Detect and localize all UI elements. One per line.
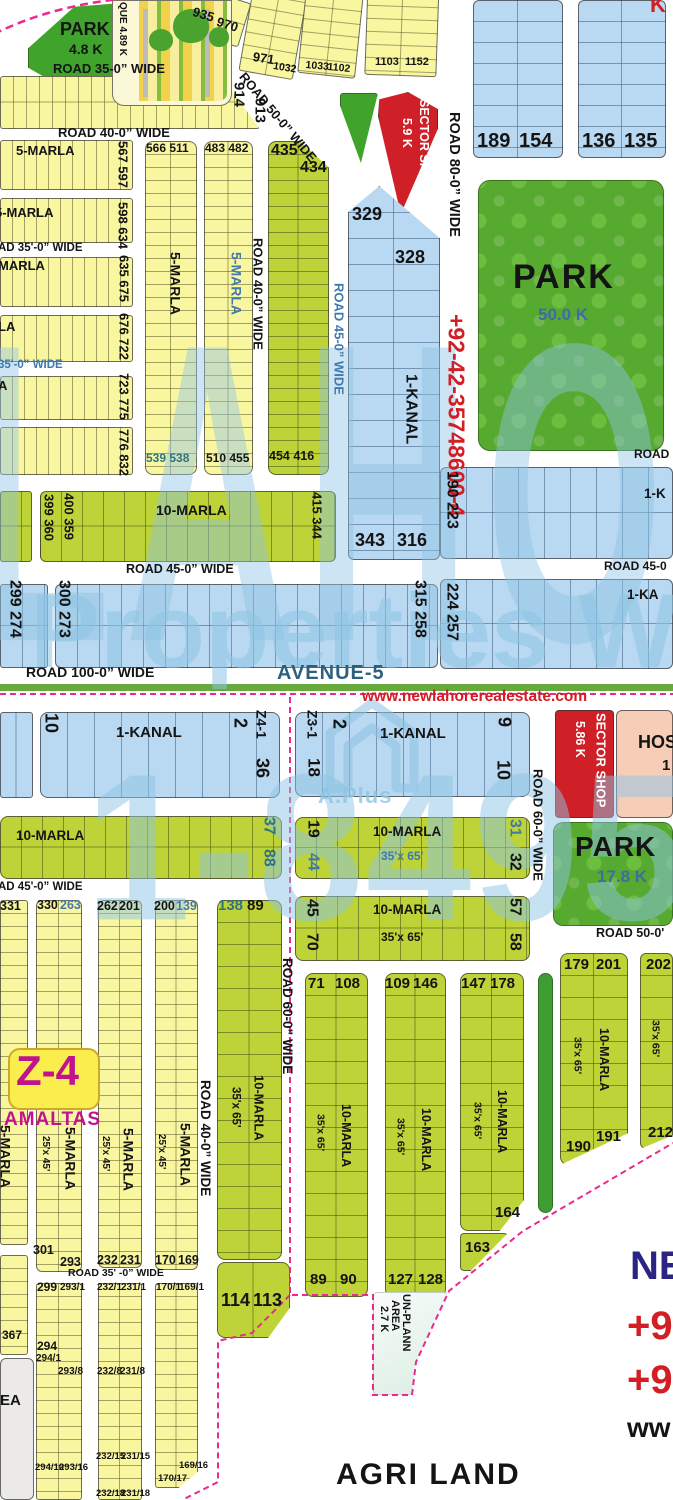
park17-size: 17.8 K [597, 868, 647, 885]
plot-299: 299 [37, 1281, 57, 1293]
row-10marla-left [0, 491, 32, 562]
plots-676-722: 676 722 [117, 313, 130, 360]
strip-c2 [98, 1283, 142, 1500]
z4-plot-2: 2 [231, 718, 249, 728]
bl-col3-5marla: 5-MARLA [121, 1128, 135, 1191]
plot-136: 136 [582, 131, 615, 151]
plot-971: 971 [252, 50, 276, 66]
plot-231-1: 231/1 [121, 1283, 146, 1293]
z3r2-58: 58 [506, 933, 522, 951]
colB-5marla: 5-MARLA [229, 252, 243, 315]
website-banner: www.newlahorerealestate.com [362, 689, 587, 705]
colA-5marla: 5-MARLA [168, 252, 182, 315]
plot-179: 179 [564, 957, 589, 972]
sector-shop1-line2: 5.9 K [400, 118, 413, 148]
plot-231: 231 [120, 1254, 141, 1267]
plot-178: 178 [490, 976, 515, 991]
plot-113: 113 [253, 1291, 282, 1309]
plot-90: 90 [340, 1272, 357, 1287]
road-60-0-wide-z3: ROAD 60-0” WIDE [531, 769, 544, 881]
5marla-row5-label: A [0, 379, 7, 392]
plots-399-360: 399 360 [42, 494, 55, 541]
row-kanal-190-223 [440, 467, 673, 559]
plot-170-17: 170/17 [158, 1474, 187, 1484]
kanal-label-329col: 1-KANAL [402, 374, 418, 444]
plots-299-274: 299 274 [6, 580, 22, 638]
plot-138: 138 [218, 898, 243, 913]
park50-name: PARK [513, 260, 615, 295]
z3r1-32: 32 [506, 853, 522, 871]
agri-land-label: AGRI LAND [336, 1460, 521, 1491]
row-5marla-4 [0, 315, 133, 362]
plot-328: 328 [395, 248, 425, 266]
colG-size: 35'x 65' [395, 1118, 406, 1155]
z3-plot-10: 10 [494, 760, 512, 780]
bl-col2-5marla: 5-MARLA [63, 1127, 77, 1190]
mosque-label: QUE 4.89 K [117, 2, 127, 56]
plot-1152: 1152 [405, 57, 429, 68]
5marla-row3-label: MARLA [0, 259, 45, 272]
plot-170: 170 [155, 1254, 176, 1267]
park50-size: 50.0 K [538, 306, 588, 323]
strip-d1 [155, 900, 198, 1270]
green-triangle-sector [340, 93, 378, 163]
plot-435: 435 [271, 143, 298, 159]
plot-331: 331 [0, 900, 21, 913]
strip-e1 [217, 900, 282, 1260]
road-80-0-wide: ROAD 80-0” WIDE [446, 112, 461, 237]
z3-kanal-label: 1-KANAL [380, 726, 446, 741]
plots-567-597: 567 597 [116, 141, 129, 188]
plot-map: PARK4.8 KQUE 4.89 K935970971103210331102… [0, 0, 673, 1500]
plot-232-1: 232/1 [97, 1283, 122, 1293]
plot-1103: 1103 [375, 57, 399, 68]
plot-263: 263 [60, 899, 81, 912]
plots-400-359: 400 359 [62, 493, 75, 540]
plot-232-8: 232/8 [97, 1367, 122, 1377]
mosque-dome-icon [149, 29, 173, 51]
road-35-0-wide-top: ROAD 35-0” WIDE [53, 62, 165, 75]
plot-189: 189 [477, 131, 510, 151]
plots-454-416: 454 416 [269, 450, 314, 463]
park1-name: PARK [60, 20, 110, 38]
z3r1-44: 44 [304, 853, 320, 871]
plots-598-634: 598 634 [116, 202, 129, 249]
colI-size: 35'x 65' [572, 1037, 583, 1074]
plots-483-482: 483 482 [205, 142, 248, 154]
row-kanal-290s [55, 584, 438, 668]
unplanned-line1: UN-PLANN [400, 1294, 411, 1351]
z3r1-size: 35'x 65' [381, 850, 423, 862]
z3r2-45: 45 [303, 899, 319, 917]
strip-c1 [98, 900, 142, 1268]
plot-1033: 1033 [305, 60, 329, 73]
plot-164: 164 [495, 1205, 520, 1220]
z3r2-size: 35'x 65' [381, 931, 423, 943]
watermark-k: K [650, 0, 666, 16]
z4-10marla-row [0, 816, 282, 879]
plot-89: 89 [247, 898, 264, 913]
plot-367: 367 [2, 1329, 22, 1341]
road-40-0-wide-bottom: ROAD 40-0” WIDE [198, 1080, 212, 1196]
plot-108: 108 [335, 976, 360, 991]
col-435-416 [268, 141, 329, 475]
plot-294: 294 [37, 1340, 57, 1352]
bl-col3-size: 25'x 45' [156, 1134, 166, 1169]
5marla-row1-label: 5-MARLA [16, 144, 75, 157]
plots-224-257: 224 257 [443, 583, 459, 641]
road-45-right: ROAD 45-0 [604, 560, 667, 572]
plot-343: 343 [355, 531, 385, 549]
5marla-row2-label: 5-MARLA [0, 206, 54, 219]
plot-169-1: 169/1 [179, 1283, 204, 1293]
z4-10marla-label: 10-MARLA [16, 829, 84, 843]
road-40-0-wide-vert: ROAD 40-0” WIDE [251, 238, 264, 350]
plot-109: 109 [385, 976, 410, 991]
ad-name: NE [630, 1246, 673, 1287]
ad-website: ww [627, 1414, 671, 1443]
z4-plot-10: 10 [42, 713, 60, 733]
bl-col1-5marla: 5-MARLA [0, 1125, 12, 1188]
plot-146: 146 [413, 976, 438, 991]
plots-539-538: 539 538 [146, 452, 189, 464]
plot-128: 128 [418, 1272, 443, 1287]
green-belt [538, 973, 553, 1213]
hospital-number: 1 [662, 758, 670, 773]
plots-566-511: 566 511 [146, 142, 189, 154]
z3r1-10marla: 10-MARLA [373, 825, 441, 839]
colF-10marla: 10-MARLA [339, 1104, 352, 1167]
plots-723-775: 723 775 [117, 373, 130, 420]
unplanned-line2: AREA [389, 1300, 400, 1331]
z3-block-label: Z3-1 [305, 710, 319, 739]
plot-212: 212 [648, 1125, 673, 1140]
colH-size: 35'x 65' [472, 1102, 483, 1139]
road-60-0-wide-bottom: ROAD 60-0” WIDE [280, 958, 294, 1074]
sector-shop1-line1: SECTOR SHOP [417, 99, 430, 190]
bl-col4-5marla: 5-MARLA [178, 1123, 192, 1186]
avenue-5: AVENUE-5 [277, 663, 385, 683]
colG-10marla: 10-MARLA [419, 1108, 432, 1171]
kanal-right-2: 1-KA [627, 588, 659, 602]
plot-169: 169 [178, 1254, 199, 1267]
bl-col2-size: 25'x 45' [100, 1136, 110, 1171]
hospital-label: HOS [638, 733, 673, 751]
colI-10marla: 10-MARLA [597, 1028, 610, 1091]
plot-1102: 1102 [327, 62, 351, 75]
plot-293-8: 293/8 [58, 1367, 83, 1377]
road-35-left-2: AD 35'-0” WIDE [0, 243, 83, 255]
z4-plot-37: 37 [260, 817, 276, 835]
row-5marla-6 [0, 427, 133, 475]
plot-201-right: 201 [596, 957, 621, 972]
plot-163: 163 [465, 1240, 490, 1255]
bl-olive-size: 35'x 65' [229, 1087, 241, 1128]
colH-10marla: 10-MARLA [495, 1090, 508, 1153]
plot-293-16: 293/16 [59, 1463, 88, 1473]
road-45-0-wide-mid: ROAD 45-0” WIDE [126, 563, 234, 576]
z3r1-19: 19 [304, 820, 320, 838]
plots-190-223: 190 223 [443, 471, 459, 529]
plot-294-1: 294/1 [36, 1354, 61, 1364]
road-40-0-wide-top: ROAD 40-0” WIDE [58, 126, 170, 139]
plot-201: 201 [119, 900, 140, 913]
plot-330: 330 [37, 899, 58, 912]
z4-kanal-partial [0, 712, 33, 798]
plot-71: 71 [308, 976, 325, 991]
plot-293-1: 293/1 [60, 1283, 85, 1293]
plot-231-8: 231/8 [120, 1367, 145, 1377]
plot-316: 316 [397, 531, 427, 549]
bl-olive-10marla: 10-MARLA [252, 1075, 265, 1141]
park1-size: 4.8 K [69, 42, 102, 56]
plot-169-16: 169/16 [179, 1461, 208, 1471]
colJ-size: 35'x 65' [650, 1020, 661, 1057]
plot-127: 127 [388, 1272, 413, 1287]
road-35-0-wide-bottom: ROAD 35' -0” WIDE [68, 1268, 164, 1279]
colF-size: 35'x 65' [315, 1114, 326, 1151]
plots-635-675: 635 675 [117, 255, 130, 302]
5marla-row4-label: LA [0, 320, 15, 333]
z3r2-57: 57 [506, 898, 522, 916]
area-block [0, 1358, 34, 1500]
plots-776-832: 776 832 [117, 429, 130, 476]
plot-231-15: 231/15 [121, 1452, 150, 1462]
z3r2-70: 70 [303, 933, 319, 951]
plot-232: 232 [97, 1254, 118, 1267]
plot-154: 154 [519, 131, 552, 151]
plot-170-1: 170/1 [156, 1283, 181, 1293]
plot-202: 202 [646, 957, 671, 972]
unplanned-line3: 2.7 K [378, 1306, 389, 1332]
sector-shop2-line2: 5.86 K [573, 721, 586, 758]
road-45-0-wide-vert: ROAD 45-0” WIDE [332, 283, 345, 395]
plot-329: 329 [352, 205, 382, 223]
row-5marla-5 [0, 376, 133, 420]
plot-114: 114 [221, 1291, 250, 1309]
z4-badge-label: Z-4 [16, 1050, 79, 1093]
ad-phone-1: +9 [627, 1306, 673, 1347]
plots-315-258: 315 258 [411, 580, 427, 638]
plot-135: 135 [624, 131, 657, 151]
ad-phone-2: +9 [627, 1360, 673, 1401]
plot-col-329-316 [348, 186, 440, 560]
10marla-row-label: 10-MARLA [156, 503, 227, 517]
strip-d2 [155, 1283, 198, 1488]
plot-190: 190 [566, 1139, 591, 1154]
z4-plot-88: 88 [260, 849, 276, 867]
plots-510-455: 510 455 [206, 452, 249, 464]
z3r2-10marla: 10-MARLA [373, 903, 441, 917]
z4-block-label: Z4-1 [254, 710, 268, 739]
z4-block-name: AMALTAS [4, 1110, 101, 1129]
z3-plot-9: 9 [495, 717, 513, 727]
road-35-left-3: 35'-0” WIDE [0, 360, 63, 372]
plots-415-344: 415 344 [310, 492, 323, 539]
road-right-partial: ROAD [634, 448, 669, 460]
plot-200: 200 [154, 900, 175, 913]
plot-262: 262 [97, 900, 118, 913]
mosque-minaret-icon [143, 9, 148, 97]
road-100-0-wide: ROAD 100-0” WIDE [26, 665, 154, 679]
plots-300-273: 300 273 [55, 580, 71, 638]
z3-plot-2: 2 [330, 719, 348, 729]
sector-shop2-line1: SECTOR SHOP [594, 713, 607, 807]
z3r1-31: 31 [506, 819, 522, 837]
area-label: EA [0, 1393, 21, 1408]
bl-col1-size: 25'x 45' [40, 1136, 50, 1171]
z3-plot-18: 18 [305, 758, 322, 777]
z4-kanal-label: 1-KANAL [116, 725, 182, 740]
plot-139: 139 [176, 900, 197, 913]
plot-231-18: 231/18 [121, 1489, 150, 1499]
road-50-right: ROAD 50-0' [596, 927, 664, 940]
z4-plot-36: 36 [253, 758, 271, 778]
park17-name: PARK [575, 833, 656, 862]
plot-301: 301 [33, 1244, 54, 1257]
plot-147: 147 [461, 976, 486, 991]
col-147-178 [460, 973, 524, 1231]
road-45-z4: AD 45'-0” WIDE [0, 882, 83, 894]
plot-89b: 89 [310, 1272, 327, 1287]
plot-434: 434 [300, 160, 327, 176]
kanal-right-1: 1-K [644, 487, 666, 501]
plot-191: 191 [596, 1129, 621, 1144]
